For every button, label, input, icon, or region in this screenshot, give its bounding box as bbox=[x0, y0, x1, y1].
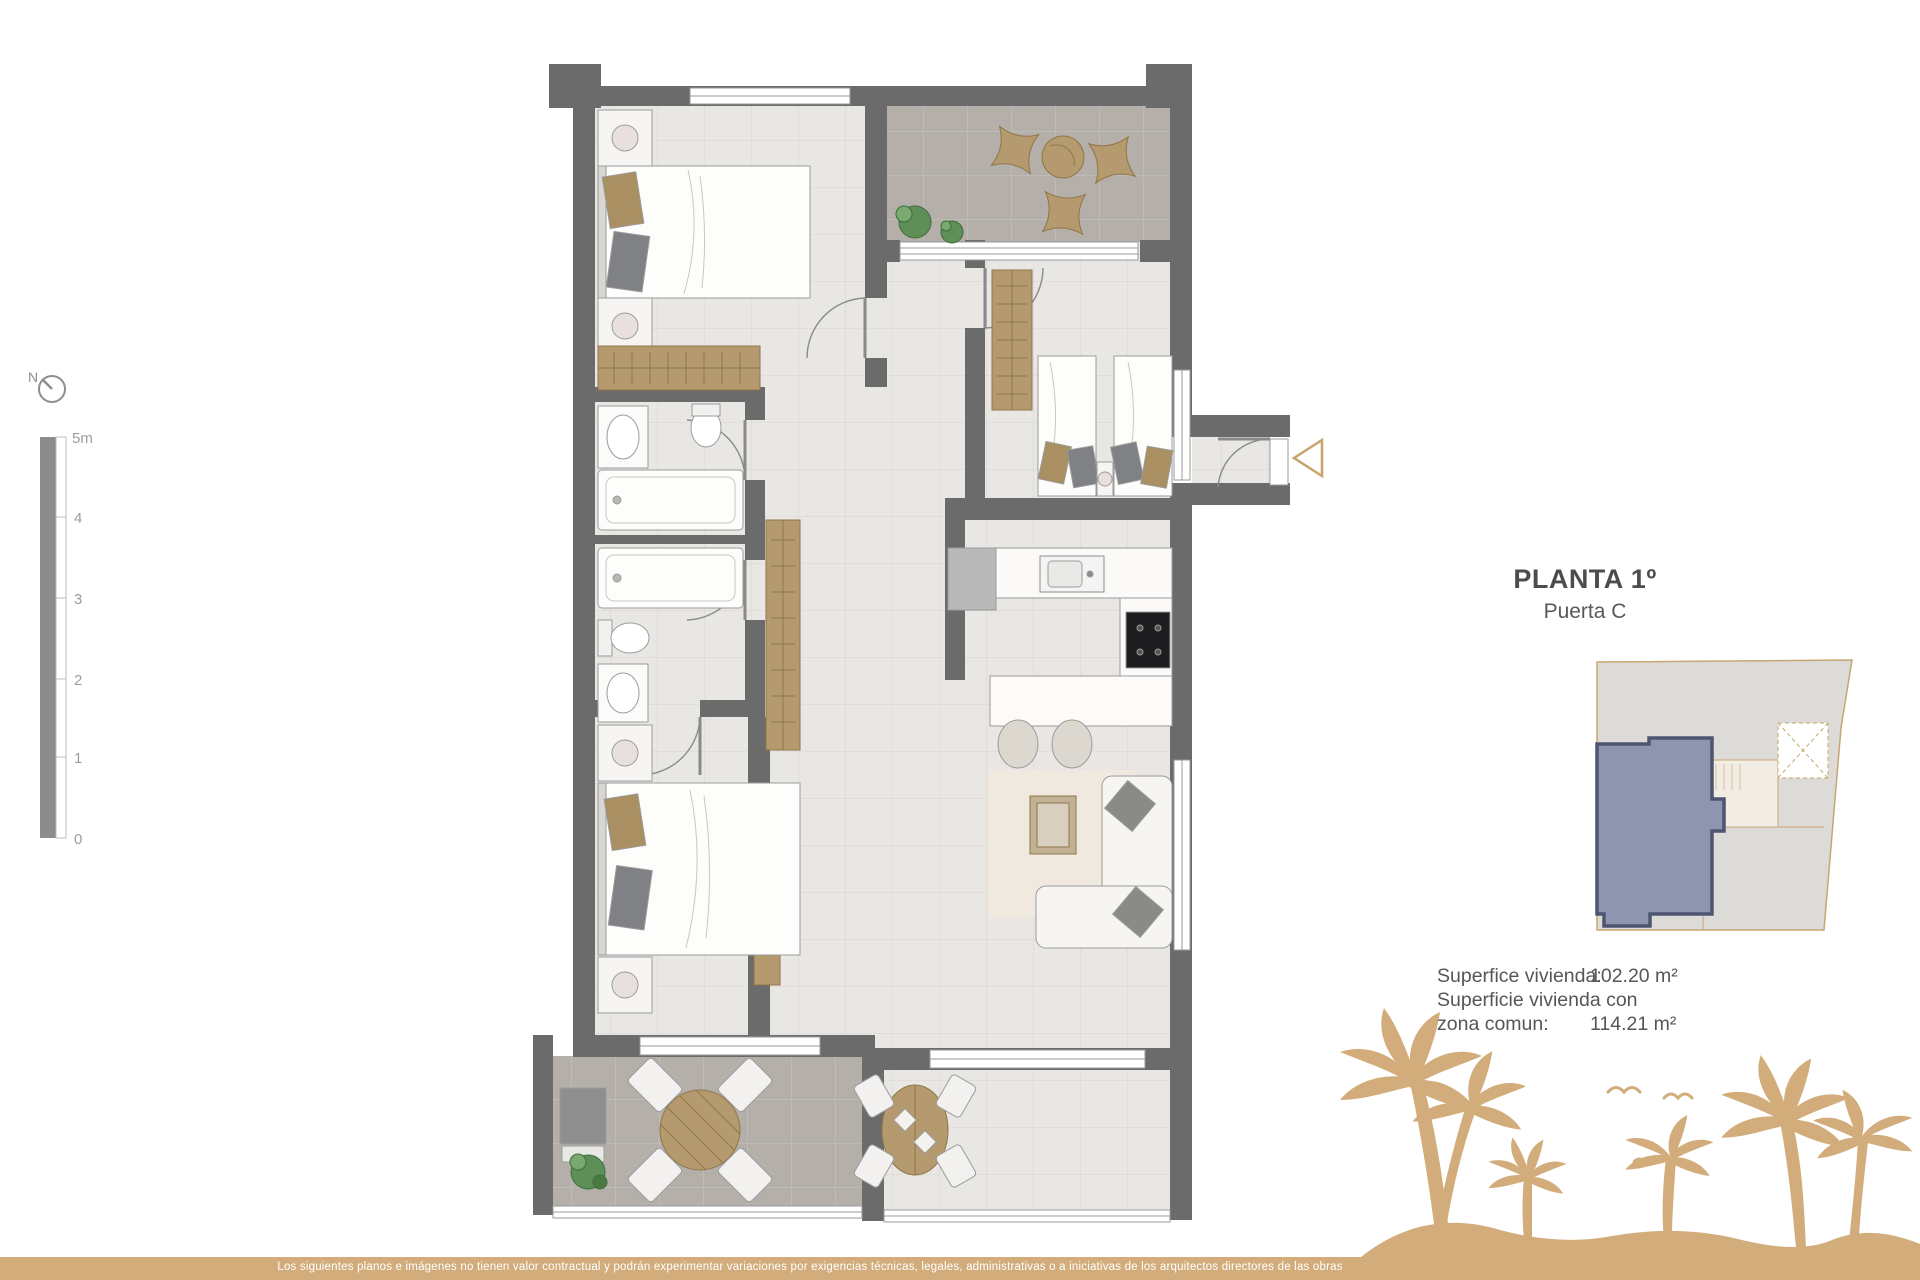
railing-terrace-bottom bbox=[553, 1206, 862, 1218]
wardrobe bbox=[992, 270, 1032, 410]
north-label: N bbox=[28, 369, 38, 385]
stool bbox=[998, 720, 1038, 768]
window-living-bottom bbox=[930, 1050, 1145, 1068]
wardrobe bbox=[598, 346, 760, 390]
area-label: Superficie vivienda con bbox=[1437, 989, 1638, 1011]
area-value: 102.20 m² bbox=[1590, 964, 1678, 988]
fridge bbox=[948, 548, 996, 610]
svg-text:1: 1 bbox=[74, 750, 82, 767]
area-row: Superfice vivienda: 102.20 m² bbox=[1437, 964, 1717, 988]
window-bedroom3-bottom bbox=[640, 1037, 820, 1055]
palm-tree bbox=[1488, 1138, 1566, 1241]
round-table bbox=[1042, 136, 1084, 178]
svg-text:3: 3 bbox=[74, 591, 82, 608]
north-compass-icon: N bbox=[28, 369, 65, 402]
key-plan bbox=[1597, 660, 1852, 930]
area-row: Superficie vivienda con bbox=[1437, 988, 1717, 1012]
area-summary: Superfice vivienda: 102.20 m² Superficie… bbox=[1437, 964, 1717, 1036]
hallway bbox=[766, 520, 800, 750]
area-label: zona comun: bbox=[1437, 1013, 1549, 1035]
svg-text:5m: 5m bbox=[72, 430, 93, 447]
page-subtitle: Puerta C bbox=[1448, 600, 1722, 624]
svg-text:2: 2 bbox=[74, 672, 82, 689]
cooktop bbox=[1126, 612, 1170, 668]
round-dining-table bbox=[660, 1090, 740, 1170]
sliding-door-terrace-top bbox=[900, 242, 1138, 260]
area-label: Superfice vivienda: bbox=[1437, 965, 1602, 987]
palm-trees-graphic bbox=[1340, 1008, 1920, 1280]
palm-tree bbox=[1625, 1115, 1713, 1242]
unit-highlight bbox=[1597, 738, 1724, 926]
floor-plan bbox=[533, 64, 1322, 1222]
window-living-right bbox=[1174, 760, 1190, 950]
palm-tree bbox=[1813, 1090, 1912, 1252]
svg-text:0: 0 bbox=[74, 831, 82, 848]
scale-bar: 5m 4 3 2 1 0 bbox=[40, 430, 93, 848]
window-bedroom1-top bbox=[690, 88, 850, 104]
corridor-wardrobe bbox=[766, 520, 800, 750]
storage-unit bbox=[560, 1088, 606, 1144]
stool bbox=[1052, 720, 1092, 768]
elevator-shaft bbox=[1778, 723, 1828, 778]
entrance-door-opening bbox=[1270, 439, 1288, 485]
scale-tick-labels: 5m 4 3 2 1 0 bbox=[72, 430, 93, 848]
page-title: PLANTA 1º bbox=[1448, 564, 1722, 595]
island bbox=[990, 676, 1172, 726]
toilet bbox=[691, 404, 721, 447]
toilet bbox=[598, 620, 649, 656]
entrance-marker-icon bbox=[1294, 440, 1322, 476]
railing-balcony bbox=[884, 1210, 1170, 1222]
area-row: zona comun: 114.21 m² bbox=[1437, 1012, 1717, 1036]
window-bedroom2-right bbox=[1174, 370, 1190, 480]
svg-text:4: 4 bbox=[74, 510, 82, 527]
area-value: 114.21 m² bbox=[1590, 1012, 1676, 1036]
disclaimer-text: Los siguientes planos e imágenes no tien… bbox=[277, 1261, 1342, 1273]
floor-plan-scene: N 5m 4 3 2 1 0 bbox=[0, 0, 1920, 1280]
entrance-floor bbox=[1192, 437, 1270, 483]
plan-title-block: PLANTA 1º Puerta C bbox=[1448, 564, 1722, 624]
